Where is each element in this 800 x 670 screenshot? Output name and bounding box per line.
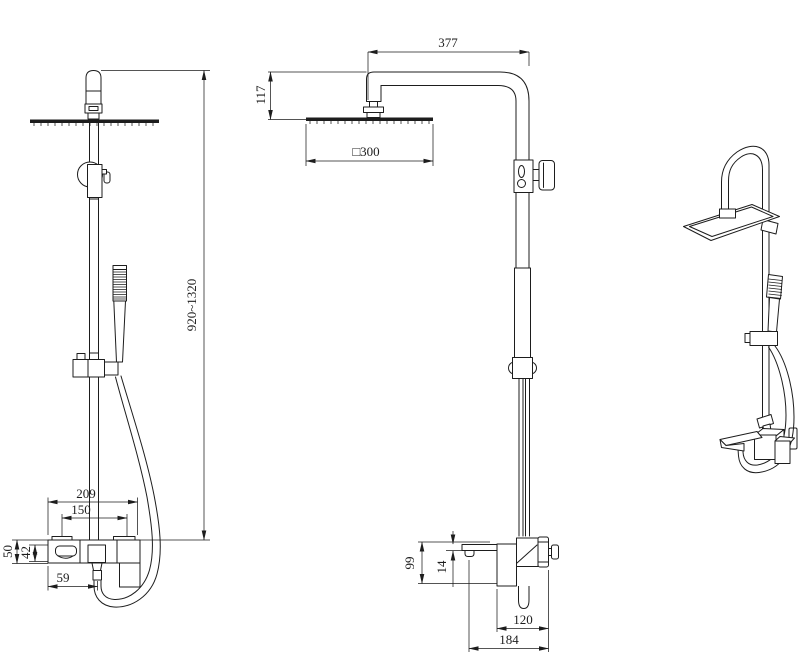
pipe-and-hose-lower [519,379,530,537]
overhead-plate-side [306,118,433,122]
handset-holder [105,362,119,375]
drawing-canvas: 377 117 □300 920~1320 209 150 50 42 59 9… [0,0,800,670]
dim-label-height-range: 920~1320 [184,279,199,332]
wall-bracket [517,538,539,567]
handset-cap [113,266,127,270]
dim-label-spout-offset: 59 [57,570,70,585]
persp-outlet-block [775,441,790,464]
pipe-clamp [513,358,533,379]
arm-reach-ref-lines [368,52,529,100]
hole-spacing-ref-lines [62,514,127,536]
valve-top-tab-right [114,537,136,541]
drop-tube [519,586,530,609]
handset-handle [114,301,126,362]
dim-label-arm-reach: 377 [438,35,458,50]
dim-label-head-drop: 117 [253,85,268,105]
hose-outlet-cone [92,563,102,571]
dim-label-inner-height: 42 [18,546,33,559]
plate-nozzles-side [310,121,429,124]
dim-label-hole-spacing: 150 [71,502,91,517]
persp-pipe [763,166,770,436]
spout-nub [465,551,474,557]
valve-top-tab-left [52,537,72,541]
persp-arm-outer [729,154,763,210]
slider-body [73,360,105,378]
valve-body-side [497,544,517,586]
shower-nozzles [34,123,153,126]
persp-head-connector [720,209,736,218]
front-view [12,71,210,608]
arm-end-cap [86,71,101,105]
head-neck [370,102,378,108]
shower-system-technical-drawing: 377 117 □300 920~1320 209 150 50 42 59 9… [0,0,800,670]
pipe-upper-side [516,193,529,269]
slider-lock-tab [77,354,85,360]
dim-label-wall-to-spout: 184 [499,632,519,647]
dim-label-body-height: 50 [0,545,15,558]
diverter-knob-side [539,161,555,191]
arm-left-elbow [367,72,382,102]
dim-label-spout-thickness: 14 [434,560,449,574]
diverter-body [88,165,103,198]
dim-label-head-size: □300 [352,144,379,159]
diverter-stem [533,170,539,181]
overhead-shower-plate [30,120,159,124]
hose-connector [93,571,102,581]
dim-label-overall-width: 209 [76,486,96,501]
persp-handset-handle [768,298,780,333]
valve-center-cartridge [88,545,106,563]
spout-side [462,545,497,551]
dim-label-deck-height: 99 [402,557,417,570]
perspective-view [684,146,798,472]
overall-width-ref-lines [48,498,138,536]
head-flange-side [364,107,384,113]
head-drop-ref-lines [268,72,367,120]
persp-slider [750,332,778,346]
pipe-outer-tube [515,268,531,358]
dim-label-wall-to-body: 120 [513,612,533,627]
deck-height-ref-lines [418,542,497,584]
check-valve-cap [552,545,559,559]
head-nut-side [367,113,380,118]
valve-lever [56,546,77,556]
front-dimension-lines [12,71,210,591]
head-nut [88,113,99,119]
outlet-block-lower [120,563,141,587]
head-swivel-detail [89,107,98,111]
